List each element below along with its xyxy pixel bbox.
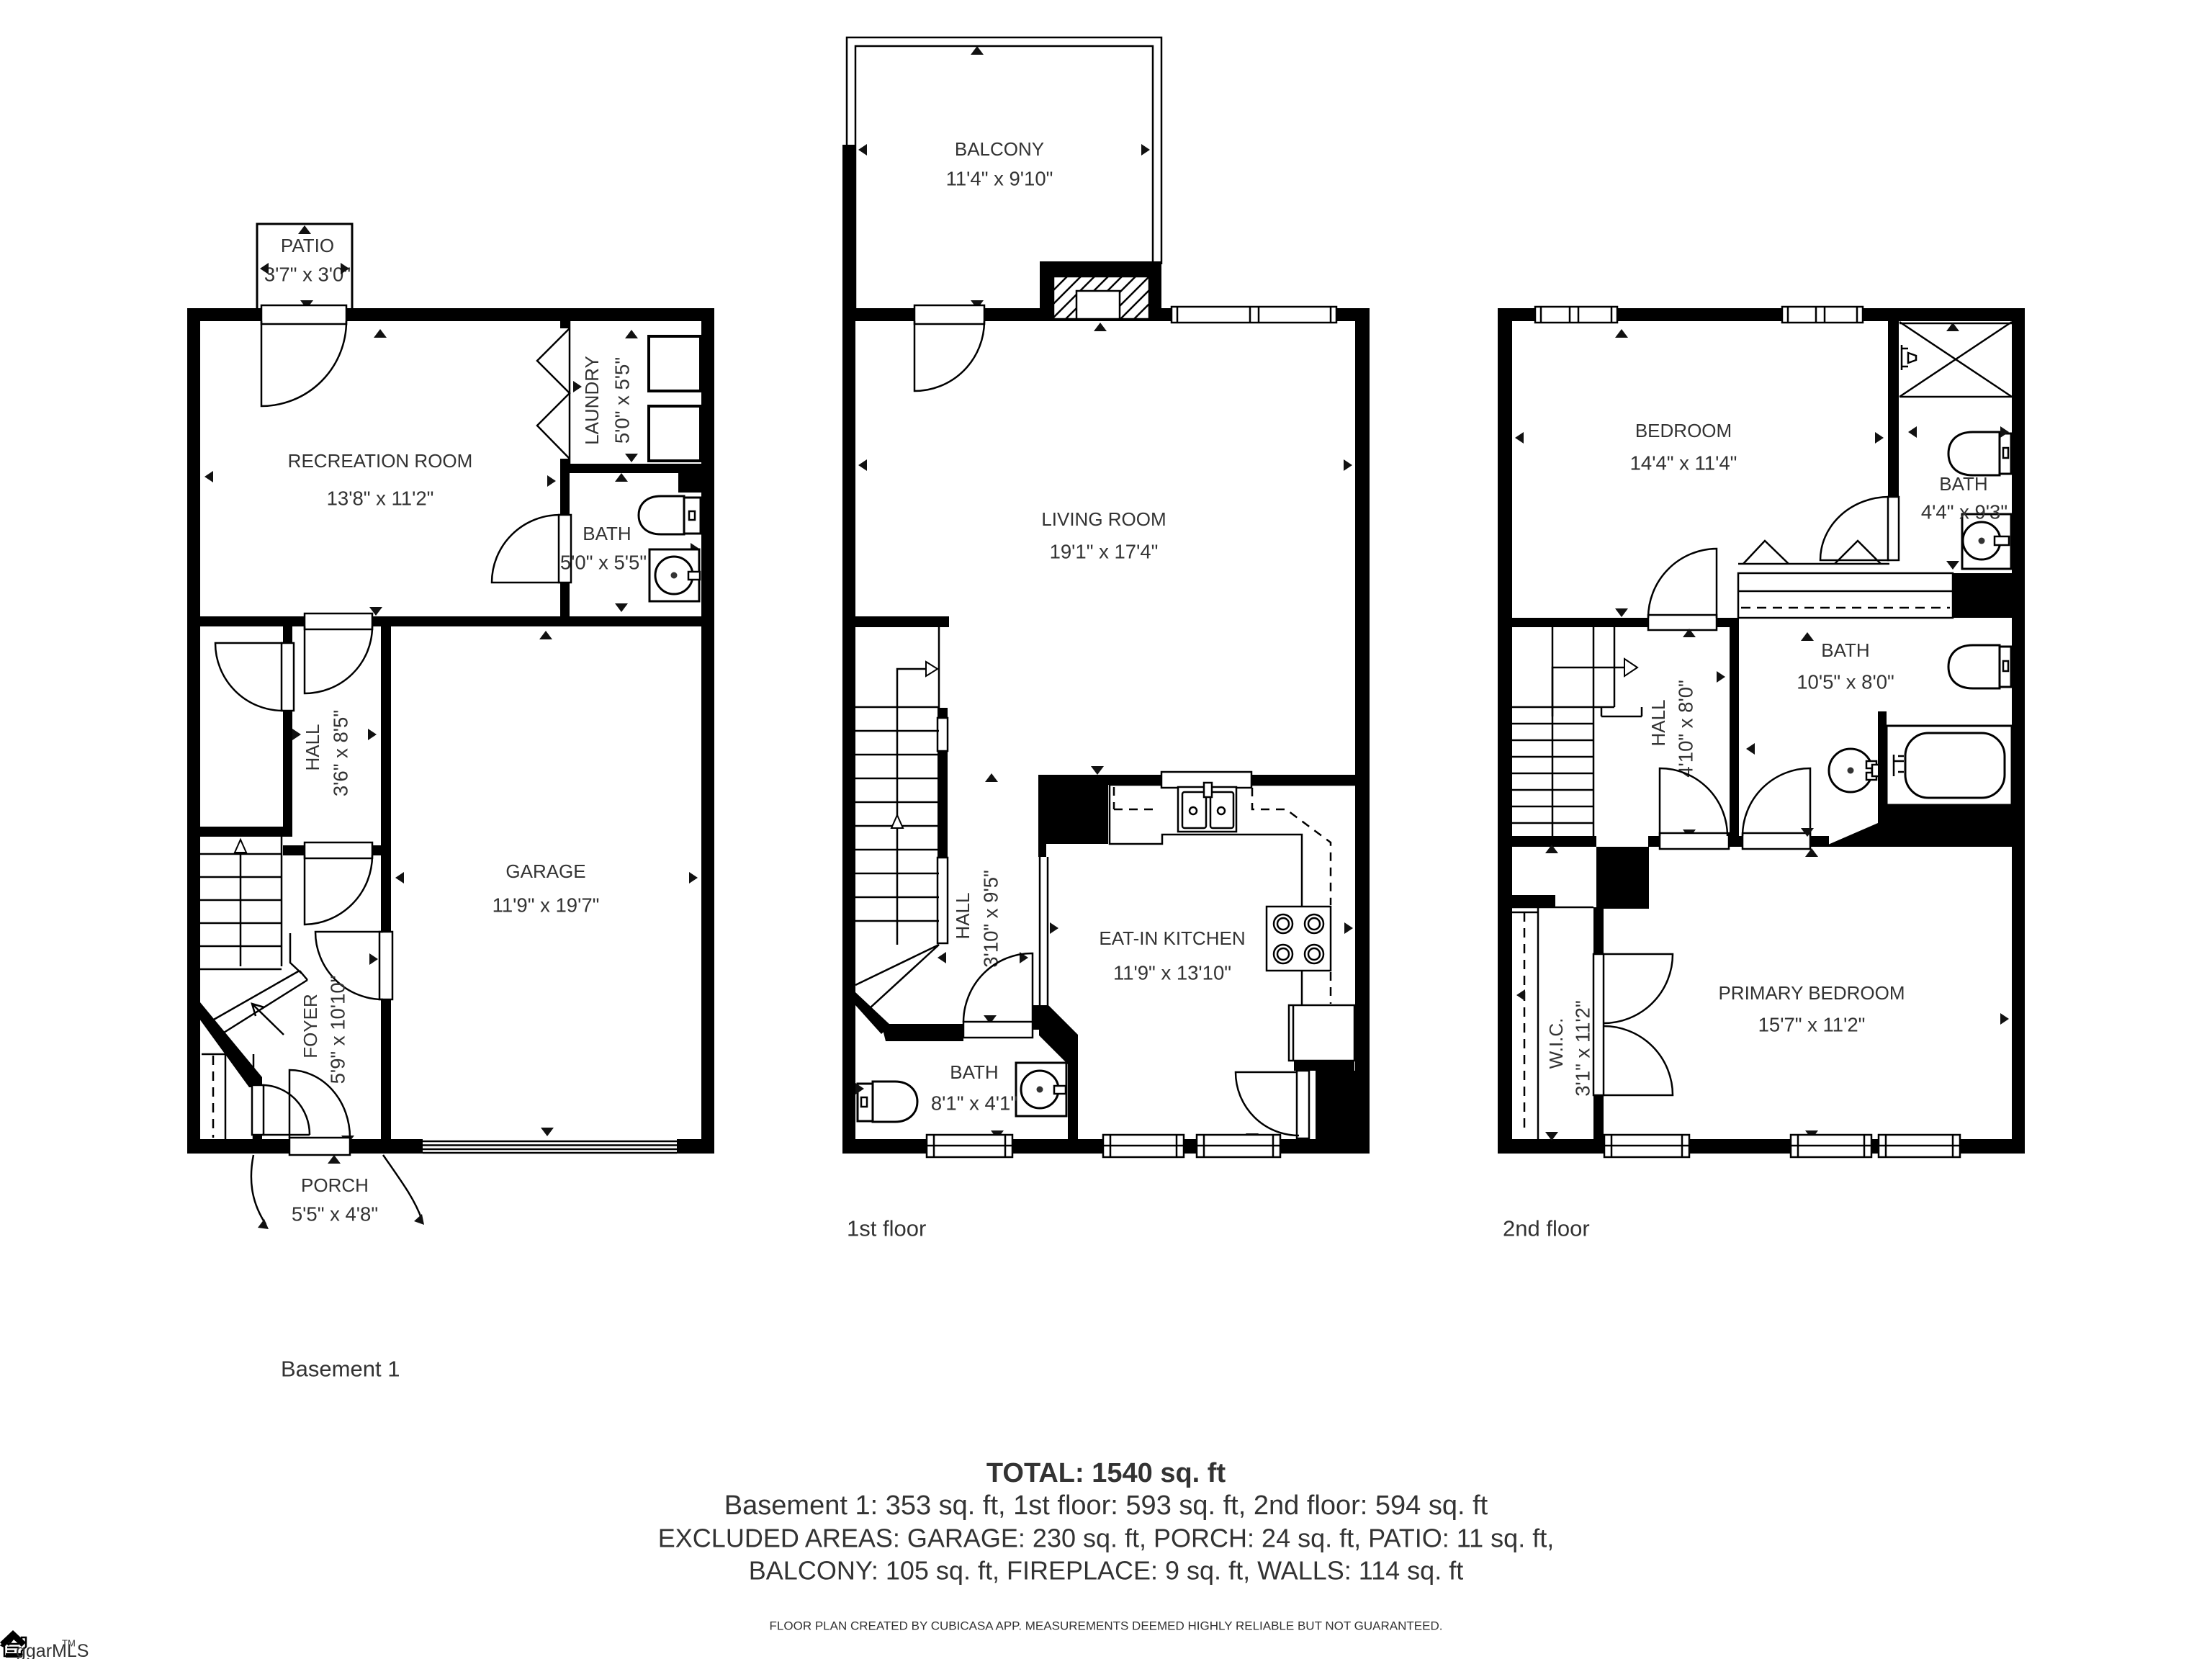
svg-text:4'10" x 8'0": 4'10" x 8'0" <box>1675 680 1697 778</box>
svg-text:FLOOR PLAN CREATED BY CUBICASA: FLOOR PLAN CREATED BY CUBICASA APP. MEAS… <box>770 1619 1443 1633</box>
svg-text:10'5" x 8'0": 10'5" x 8'0" <box>1797 671 1894 693</box>
svg-text:PATIO: PATIO <box>281 235 334 256</box>
svg-text:BALCONY: BALCONY <box>955 138 1044 160</box>
svg-text:BALCONY: 105 sq. ft, FIREPLACE: BALCONY: 105 sq. ft, FIREPLACE: 9 sq. ft… <box>749 1556 1463 1586</box>
svg-text:19'1" x 17'4": 19'1" x 17'4" <box>1050 541 1159 563</box>
svg-text:BATH: BATH <box>583 523 631 544</box>
svg-text:FOYER: FOYER <box>300 994 321 1058</box>
svg-text:3'6" x 8'5": 3'6" x 8'5" <box>330 710 352 796</box>
svg-text:HALL: HALL <box>1647 699 1669 746</box>
svg-text:11'9" x 19'7": 11'9" x 19'7" <box>493 894 600 917</box>
svg-text:14'4" x 11'4": 14'4" x 11'4" <box>1630 452 1737 475</box>
svg-text:5'0" x 5'5": 5'0" x 5'5" <box>611 357 634 444</box>
svg-text:RECREATION ROOM: RECREATION ROOM <box>288 450 473 472</box>
svg-text:8'1" x 4'1": 8'1" x 4'1" <box>931 1092 1017 1115</box>
svg-text:TOTAL: 1540 sq. ft: TOTAL: 1540 sq. ft <box>986 1458 1226 1488</box>
svg-text:EXCLUDED AREAS: GARAGE: 230 sq: EXCLUDED AREAS: GARAGE: 230 sq. ft, PORC… <box>658 1524 1554 1553</box>
svg-text:5'5" x 4'8": 5'5" x 4'8" <box>292 1203 378 1226</box>
svg-text:EAT-IN KITCHEN: EAT-IN KITCHEN <box>1099 927 1245 949</box>
svg-text:W.I.C.: W.I.C. <box>1545 1018 1567 1069</box>
svg-text:BEDROOM: BEDROOM <box>1635 420 1732 441</box>
svg-text:3'7" x 3'0": 3'7" x 3'0" <box>264 264 351 286</box>
svg-text:11'9" x 13'10": 11'9" x 13'10" <box>1113 962 1231 984</box>
svg-text:HALL: HALL <box>302 724 323 770</box>
svg-text:LIVING ROOM: LIVING ROOM <box>1041 508 1166 530</box>
svg-text:BATH: BATH <box>1939 473 1987 495</box>
svg-text:PORCH: PORCH <box>301 1174 369 1196</box>
svg-text:PRIMARY BEDROOM: PRIMARY BEDROOM <box>1718 982 1905 1004</box>
svg-text:ggarMLS: ggarMLS <box>16 1641 89 1659</box>
svg-text:13'8" x 11'2": 13'8" x 11'2" <box>327 487 434 510</box>
svg-text:5'0" x 5'5": 5'0" x 5'5" <box>560 552 647 574</box>
svg-text:LAUNDRY: LAUNDRY <box>581 356 603 445</box>
svg-text:BATH: BATH <box>1821 639 1869 661</box>
svg-text:15'7" x 11'2": 15'7" x 11'2" <box>1758 1014 1866 1036</box>
svg-text:HALL: HALL <box>952 892 974 939</box>
svg-text:Basement 1: Basement 1 <box>281 1357 400 1382</box>
svg-text:11'4" x 9'10": 11'4" x 9'10" <box>946 168 1053 190</box>
svg-text:BATH: BATH <box>950 1061 998 1083</box>
svg-text:5'9" x 10'10": 5'9" x 10'10" <box>327 976 349 1084</box>
svg-text:3'10" x 9'5": 3'10" x 9'5" <box>980 870 1002 968</box>
svg-text:3'1" x 11'2": 3'1" x 11'2" <box>1572 1000 1594 1097</box>
svg-text:4'4" x 9'3": 4'4" x 9'3" <box>1921 501 2008 523</box>
svg-text:TM: TM <box>62 1638 76 1649</box>
svg-text:1st floor: 1st floor <box>847 1216 926 1241</box>
svg-text:GARAGE: GARAGE <box>505 860 585 882</box>
svg-text:2nd floor: 2nd floor <box>1503 1216 1590 1241</box>
svg-text:Basement 1: 353 sq. ft, 1st fl: Basement 1: 353 sq. ft, 1st floor: 593 s… <box>724 1491 1488 1521</box>
